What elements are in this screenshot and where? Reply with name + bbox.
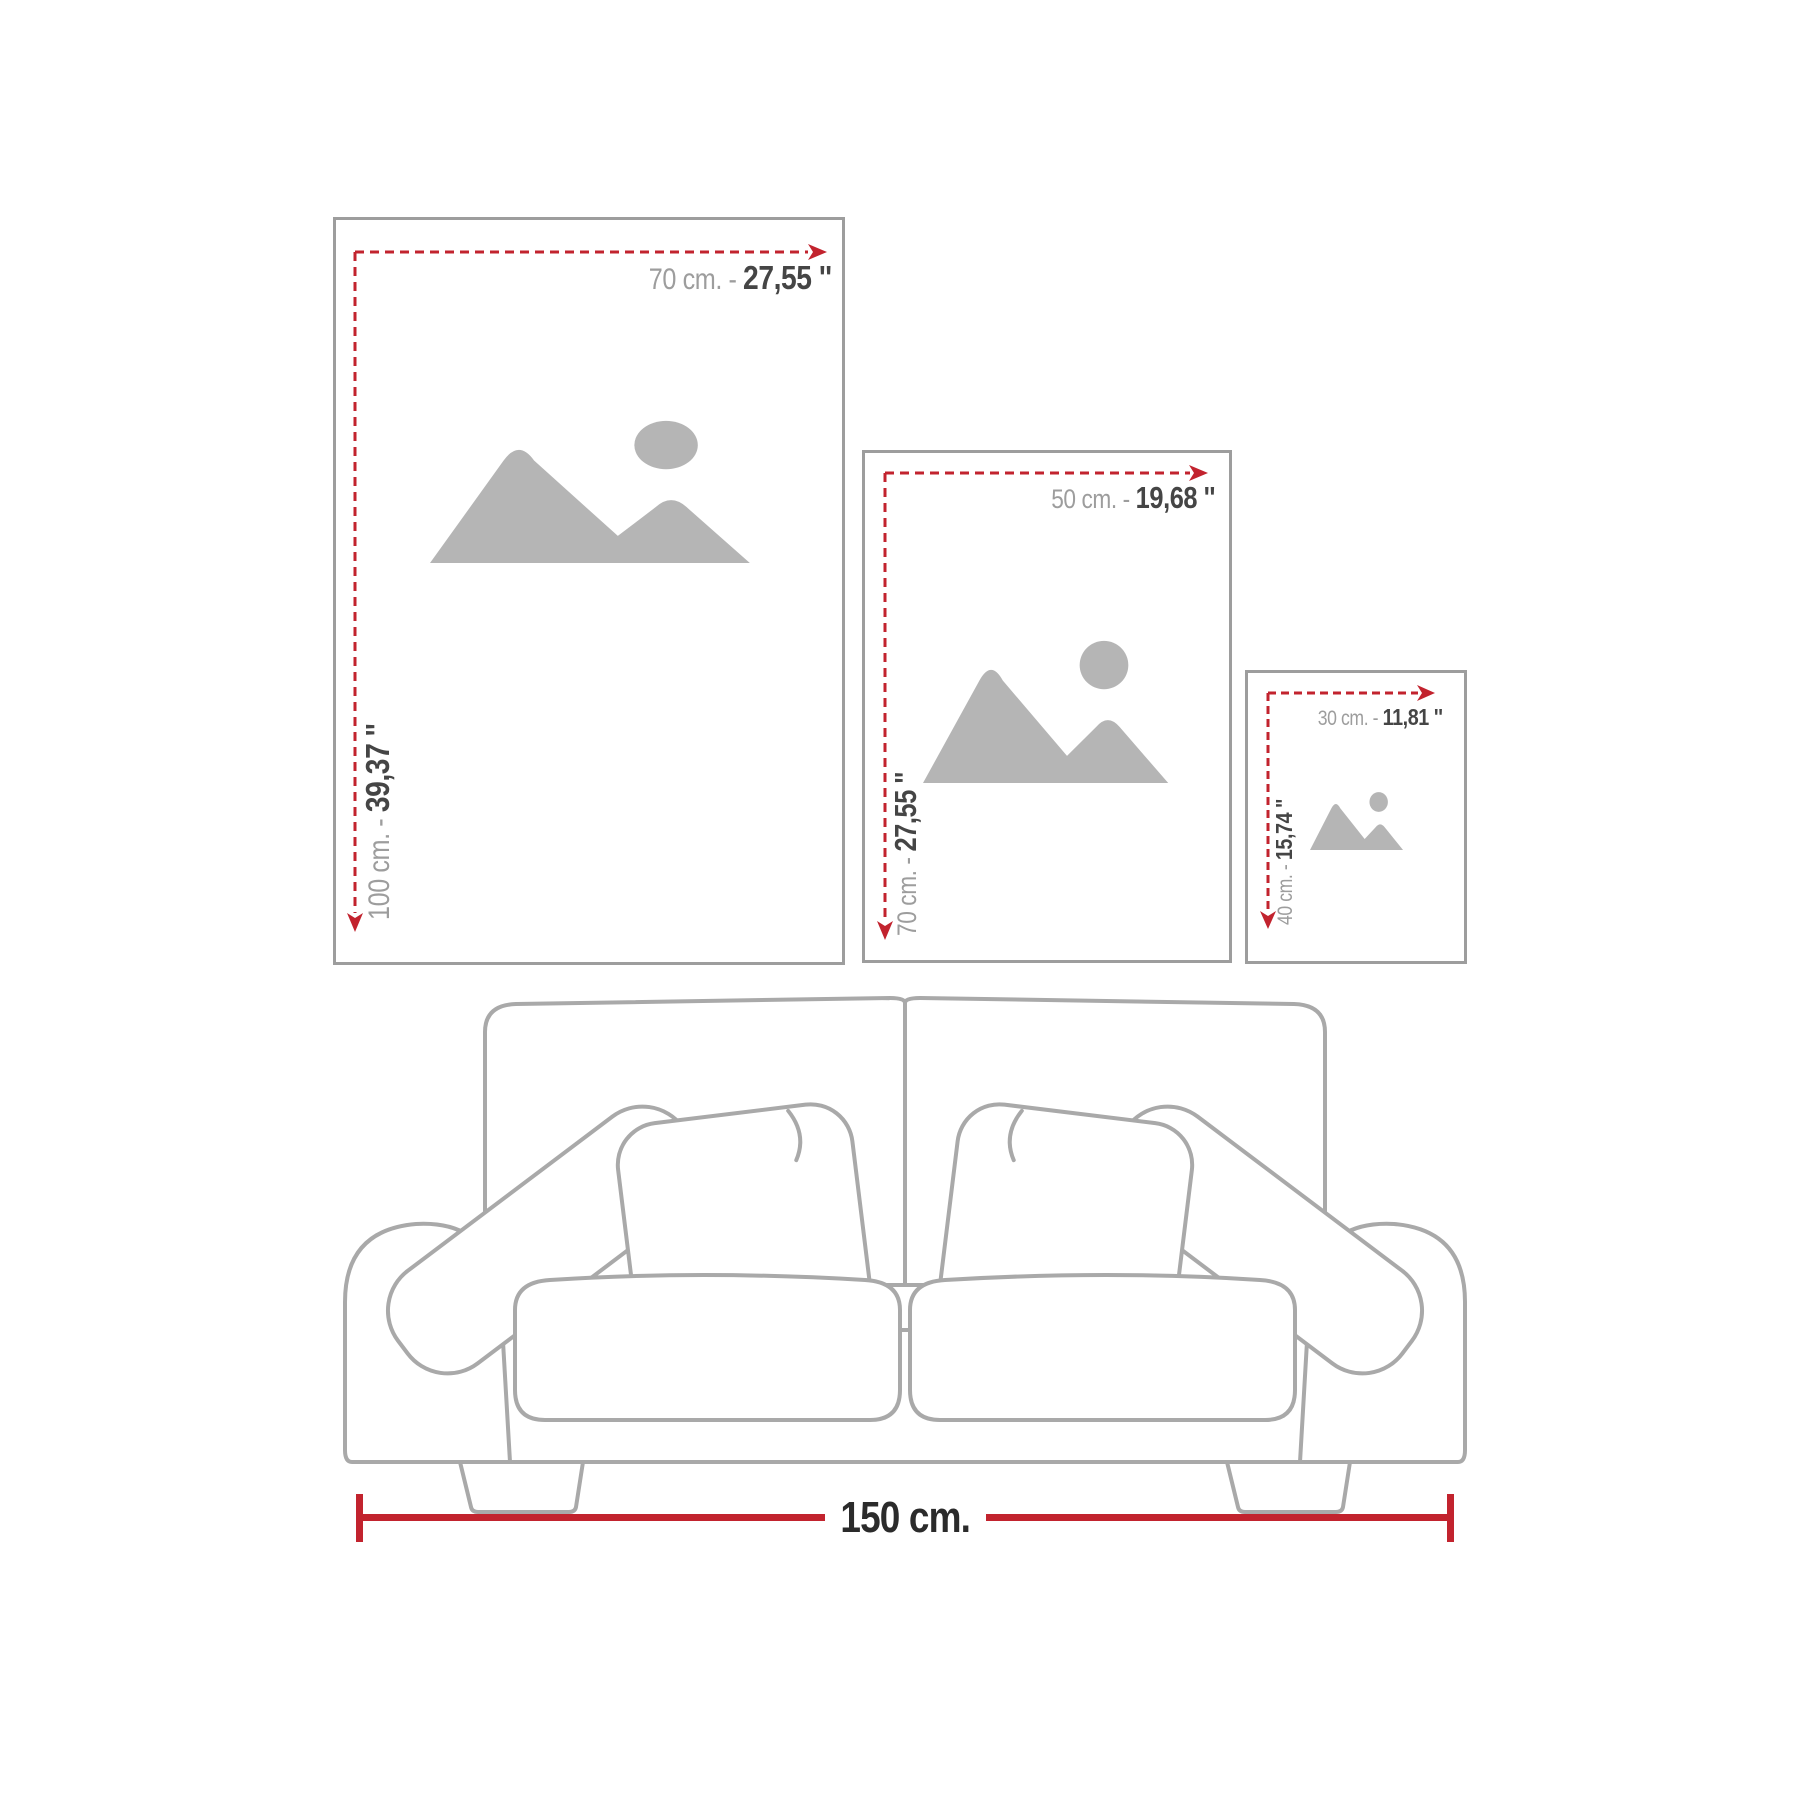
arrow-down-icon — [347, 913, 363, 932]
arrow-down-icon — [877, 921, 893, 940]
sofa-seat-right — [910, 1275, 1295, 1420]
measure-end-cap-left — [356, 1494, 363, 1542]
image-placeholder-icon — [430, 418, 760, 563]
image-placeholder-icon — [1310, 791, 1406, 850]
measure-end-cap-right — [1447, 1494, 1454, 1542]
width-label-small: 30 cm. - 11,81 '' — [1294, 706, 1442, 730]
poster-frame-medium: 50 cm. - 19,68 '' 70 cm. - 27,55 '' — [862, 450, 1232, 963]
height-label-large: 100 cm. - 39,37 '' — [362, 686, 396, 920]
poster-frame-small: 30 cm. - 11,81 '' 40 cm. - 15,74 '' — [1245, 670, 1467, 964]
poster-frame-large: 70 cm. - 27,55 '' 100 cm. - 39,37 '' — [333, 217, 845, 965]
sofa-foot-right — [1227, 1462, 1350, 1512]
arrow-right-icon — [808, 244, 827, 260]
arrow-right-icon — [1417, 685, 1435, 701]
height-label-small: 40 cm. - 15,74 '' — [1273, 775, 1297, 925]
sofa-seat-left — [515, 1275, 900, 1420]
dimension-arrows-large — [336, 220, 842, 962]
height-label-medium: 70 cm. - 27,55 '' — [892, 741, 922, 936]
image-placeholder-icon — [923, 638, 1176, 783]
sofa-foot-left — [460, 1462, 583, 1512]
arrow-right-icon — [1189, 465, 1208, 481]
width-label-large: 70 cm. - 27,55 '' — [614, 262, 832, 296]
measure-line-right — [986, 1514, 1447, 1521]
measure-line-left — [363, 1514, 825, 1521]
width-label-medium: 50 cm. - 19,68 '' — [1020, 484, 1215, 514]
sofa-illustration — [320, 990, 1490, 1515]
sofa-width-label: 150 cm. — [810, 1496, 1000, 1540]
